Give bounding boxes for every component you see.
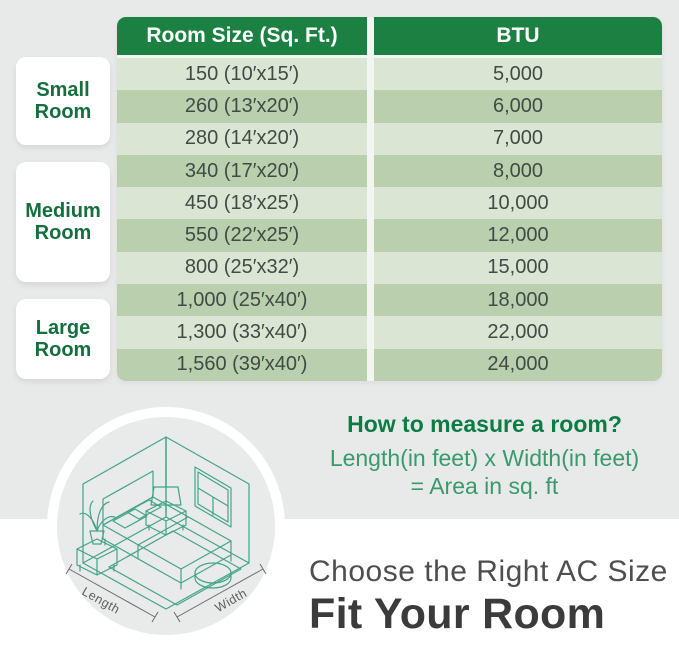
- infographic-page: Room Size (Sq. Ft.) BTU 150 (10′x15′) 5,…: [0, 0, 679, 648]
- btu-cell: 15,000: [374, 252, 662, 284]
- group-label-text: Small Room: [23, 79, 103, 124]
- group-label-text: Medium Room: [23, 200, 103, 245]
- btu-cell: 8,000: [374, 155, 662, 187]
- room-size-cell: 1,300 (33′x40′): [117, 316, 367, 348]
- footer-title: Fit Your Room: [309, 590, 668, 639]
- room-size-cell: 450 (18′x25′): [117, 187, 367, 219]
- btu-cell: 6,000: [374, 90, 662, 122]
- how-to-measure-block: How to measure a room? Length(in feet) x…: [290, 411, 679, 500]
- room-size-cell: 280 (14′x20′): [117, 123, 367, 155]
- column-header-room-size: Room Size (Sq. Ft.): [117, 17, 367, 58]
- how-to-measure-title: How to measure a room?: [290, 411, 679, 438]
- room-size-cell: 800 (25′x32′): [117, 252, 367, 284]
- room-size-cell: 260 (13′x20′): [117, 90, 367, 122]
- room-size-cell: 150 (10′x15′): [117, 58, 367, 90]
- footer-headline: Choose the Right AC Size Fit Your Room: [309, 555, 668, 639]
- btu-cell: 5,000: [374, 58, 662, 90]
- how-to-measure-formula: Length(in feet) x Width(in feet): [290, 444, 679, 472]
- room-illustration: Length Width: [43, 403, 289, 648]
- btu-cell: 18,000: [374, 284, 662, 316]
- column-header-btu: BTU: [374, 17, 662, 58]
- room-size-cell: 550 (22′x25′): [117, 219, 367, 251]
- btu-cell: 12,000: [374, 219, 662, 251]
- btu-cell: 22,000: [374, 316, 662, 348]
- btu-sizing-table: Room Size (Sq. Ft.) BTU 150 (10′x15′) 5,…: [117, 17, 662, 381]
- group-label-medium-room: Medium Room: [16, 162, 110, 282]
- btu-cell: 10,000: [374, 187, 662, 219]
- btu-cell: 24,000: [374, 349, 662, 381]
- group-label-small-room: Small Room: [16, 57, 110, 145]
- room-size-cell: 340 (17′x20′): [117, 155, 367, 187]
- room-size-cell: 1,000 (25′x40′): [117, 284, 367, 316]
- group-label-text: Large Room: [23, 317, 103, 362]
- group-label-large-room: Large Room: [16, 299, 110, 379]
- footer-subtitle: Choose the Right AC Size: [309, 555, 668, 589]
- room-size-cell: 1,560 (39′x40′): [117, 349, 367, 381]
- how-to-measure-result: = Area in sq. ft: [290, 472, 679, 500]
- btu-cell: 7,000: [374, 123, 662, 155]
